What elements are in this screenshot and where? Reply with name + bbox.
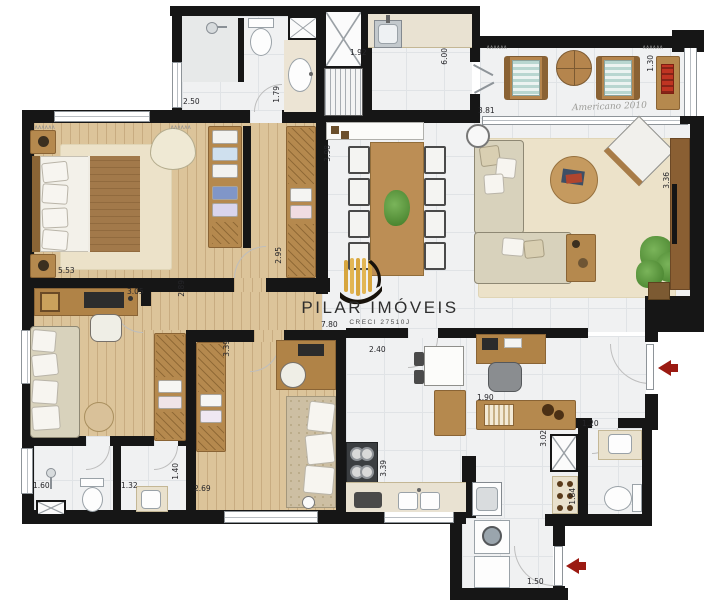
kitchen-cart bbox=[434, 390, 466, 436]
watermark-title: PILAR IMÓVEIS bbox=[295, 298, 465, 318]
wall bbox=[578, 428, 588, 520]
dimension-label: 3.39 bbox=[222, 340, 231, 357]
wall bbox=[645, 296, 704, 332]
door-gap bbox=[86, 436, 110, 446]
entrance-arrow-icon bbox=[658, 360, 680, 376]
wall bbox=[680, 116, 704, 124]
wall bbox=[690, 118, 704, 300]
stove-cooktop bbox=[346, 442, 378, 484]
toilet-tank bbox=[632, 484, 642, 512]
toilet-bowl bbox=[250, 28, 272, 56]
side-table-item bbox=[572, 240, 580, 248]
tv-screen bbox=[672, 184, 677, 244]
bottle bbox=[557, 481, 563, 487]
folded-clothes bbox=[290, 205, 312, 219]
balcony-round-table bbox=[556, 50, 592, 86]
dimension-label: 1.30 bbox=[646, 55, 655, 72]
bed-duvet bbox=[88, 156, 140, 252]
side-table-item bbox=[578, 258, 588, 268]
bedside-lamp bbox=[38, 136, 49, 147]
office-chair bbox=[488, 362, 522, 392]
curtain-symbol: ∧∧∧∧∧∧ bbox=[34, 124, 54, 131]
laundry-tank-basin bbox=[476, 487, 498, 511]
dimension-label: 1.20 bbox=[582, 419, 599, 428]
duct-shaft bbox=[36, 500, 66, 516]
desk-frame-item bbox=[40, 292, 60, 312]
dimension-label: 1.32 bbox=[121, 481, 138, 490]
window-bathroom-suite bbox=[172, 62, 182, 108]
dimension-label: 2.69 bbox=[194, 484, 211, 493]
wall bbox=[346, 328, 408, 338]
dimension-label: 2.95 bbox=[274, 247, 283, 264]
desk-mouse bbox=[128, 296, 133, 301]
wall bbox=[450, 588, 568, 600]
duct-shaft bbox=[550, 434, 578, 472]
dimension-label: 1.50 bbox=[527, 577, 544, 586]
wall bbox=[642, 428, 652, 526]
arrow-tail bbox=[671, 364, 678, 372]
desk-chair bbox=[280, 362, 306, 388]
hanging-clothes bbox=[288, 128, 314, 184]
balcony-sliding-door bbox=[482, 116, 688, 125]
shower-arm-icon bbox=[50, 477, 52, 489]
elevator-shaft bbox=[324, 10, 363, 68]
window-bedroom2 bbox=[224, 511, 318, 523]
sink bbox=[141, 490, 161, 509]
kitchen-sink bbox=[398, 492, 418, 510]
desk-computer bbox=[84, 292, 124, 308]
pillow bbox=[41, 183, 68, 205]
hanging-clothes bbox=[156, 412, 184, 439]
window-kitchen bbox=[384, 511, 454, 523]
dimension-label: 2.40 bbox=[369, 345, 386, 354]
toilet-bowl bbox=[82, 487, 103, 512]
pillow bbox=[305, 433, 336, 466]
dining-chair bbox=[424, 210, 446, 238]
dimension-label: 1.79 bbox=[272, 86, 281, 103]
entrance-arrow-icon bbox=[566, 558, 588, 574]
throw-pillow bbox=[523, 239, 545, 259]
hanging-clothes bbox=[212, 222, 238, 244]
entry-door bbox=[646, 344, 654, 390]
desk-laptop bbox=[482, 338, 498, 350]
pillow bbox=[41, 207, 68, 228]
faucet-icon bbox=[417, 488, 421, 492]
dining-chair bbox=[348, 146, 370, 174]
wall bbox=[645, 330, 658, 342]
throw-pillow bbox=[501, 237, 524, 257]
shelf-item bbox=[484, 404, 514, 426]
dimension-label: 3.39 bbox=[379, 460, 388, 477]
kitchen-chair bbox=[414, 370, 424, 384]
bedroom-armchair bbox=[150, 128, 196, 170]
floor-lamp bbox=[466, 124, 490, 148]
office-chair bbox=[90, 314, 122, 342]
dimension-label: 3.05 bbox=[127, 287, 144, 296]
curtain-symbol: ∧∧∧∧∧∧ bbox=[170, 124, 190, 131]
kitchen-chair bbox=[414, 352, 424, 366]
arrow-head bbox=[566, 558, 579, 574]
dimension-label: 2.89 bbox=[177, 280, 186, 297]
dimension-label: 5.53 bbox=[58, 266, 75, 275]
dimension-label: 1.84 bbox=[568, 488, 577, 505]
faucet-icon bbox=[309, 72, 313, 76]
wall bbox=[450, 518, 462, 600]
hanging-clothes bbox=[156, 335, 184, 377]
buffet-item bbox=[341, 131, 349, 139]
dryer-cabinet bbox=[474, 556, 510, 588]
door-gap bbox=[408, 328, 438, 338]
dimension-label: 1.40 bbox=[171, 463, 180, 480]
dining-chair bbox=[424, 146, 446, 174]
sink bbox=[608, 434, 632, 454]
pillow bbox=[303, 465, 335, 496]
shower-head-icon bbox=[206, 22, 218, 34]
hanging-clothes bbox=[198, 426, 224, 450]
wall bbox=[438, 328, 478, 338]
dimension-label: 6.00 bbox=[440, 48, 449, 65]
folded-clothes bbox=[158, 396, 182, 409]
dimension-label: 3.02 bbox=[539, 430, 548, 447]
bedside-lamp bbox=[38, 260, 49, 271]
kitchen-table bbox=[424, 346, 464, 386]
dimension-label: 2.50 bbox=[183, 97, 200, 106]
coffee-table-books bbox=[566, 173, 583, 184]
grill-item bbox=[661, 64, 674, 94]
folded-clothes bbox=[212, 186, 238, 200]
hanging-clothes bbox=[288, 224, 314, 276]
wall bbox=[243, 126, 251, 248]
bottle bbox=[557, 493, 563, 499]
folded-clothes bbox=[212, 164, 238, 178]
dining-chair bbox=[348, 178, 370, 206]
pillow bbox=[31, 329, 57, 353]
stairwell bbox=[324, 68, 363, 116]
dimension-label: 3.81 bbox=[478, 106, 495, 115]
folded-clothes bbox=[200, 410, 222, 423]
armchair-cushion bbox=[512, 60, 540, 96]
window-master-bedroom bbox=[54, 111, 150, 122]
wall bbox=[113, 442, 121, 512]
shelf-item bbox=[542, 404, 554, 416]
toilet-tank bbox=[80, 478, 104, 487]
window-bathroom bbox=[21, 448, 33, 494]
bottle bbox=[567, 481, 573, 487]
throw-pillow bbox=[483, 173, 504, 194]
service-door bbox=[554, 546, 563, 586]
desk-papers bbox=[504, 338, 522, 348]
folded-clothes bbox=[290, 188, 312, 202]
washer-door bbox=[482, 526, 502, 546]
floor-plan: ∧∧∧∧∧∧ ∧∧∧∧∧∧ ∧∧∧∧∧∧ ∧∧∧∧∧∧ Americano 20… bbox=[0, 0, 715, 614]
buffet-item bbox=[331, 126, 339, 134]
desk-monitor bbox=[298, 344, 324, 356]
door-gap bbox=[234, 278, 266, 292]
wall bbox=[553, 524, 565, 546]
arrow-head bbox=[658, 360, 671, 376]
wall bbox=[618, 418, 652, 428]
pillow bbox=[41, 161, 69, 184]
dimension-label: 1.92 bbox=[350, 48, 367, 57]
pillow bbox=[41, 229, 69, 251]
bottle bbox=[557, 505, 563, 511]
dimension-label: 3.36 bbox=[662, 172, 671, 189]
dining-chair bbox=[424, 178, 446, 206]
folded-clothes bbox=[212, 130, 238, 144]
dining-chair bbox=[348, 210, 370, 238]
arrow-tail bbox=[579, 562, 586, 570]
kitchen-sink bbox=[420, 492, 440, 510]
elevator-shaft bbox=[288, 16, 318, 40]
folded-clothes bbox=[200, 394, 222, 407]
curtain-symbol: ∧∧∧∧∧∧ bbox=[642, 44, 662, 51]
toilet-tank bbox=[248, 18, 274, 28]
pouf bbox=[84, 402, 114, 432]
pillow bbox=[31, 405, 61, 431]
kitchen-appliance bbox=[354, 492, 382, 508]
toilet-bowl bbox=[604, 486, 632, 511]
bottle bbox=[567, 505, 573, 511]
dimension-label: 7.80 bbox=[321, 320, 338, 329]
plant-pot bbox=[648, 282, 670, 300]
shelf-item bbox=[554, 410, 564, 420]
pillow bbox=[31, 379, 59, 405]
pillow bbox=[306, 401, 335, 434]
laundry-tank-basin bbox=[378, 24, 398, 44]
dimension-label: 1.90 bbox=[477, 393, 494, 402]
pillow bbox=[31, 353, 59, 378]
armchair-cushion bbox=[604, 60, 632, 96]
balcony-glass-panel bbox=[684, 46, 697, 120]
curtain-symbol: ∧∧∧∧∧∧ bbox=[486, 44, 506, 51]
folded-clothes bbox=[212, 203, 238, 217]
dining-chair bbox=[424, 242, 446, 270]
shower-arm-icon bbox=[217, 26, 227, 28]
wall bbox=[238, 18, 244, 82]
wall bbox=[336, 330, 346, 512]
folded-clothes bbox=[158, 380, 182, 393]
hanging-clothes bbox=[198, 344, 224, 392]
floor-lamp bbox=[302, 496, 315, 509]
folded-clothes bbox=[212, 147, 238, 161]
faucet-icon bbox=[386, 15, 390, 23]
wall bbox=[680, 40, 704, 48]
dimension-label: 1.60 bbox=[33, 481, 50, 490]
dimension-label: 3.98 bbox=[323, 145, 332, 162]
bed-headboard bbox=[32, 156, 40, 252]
